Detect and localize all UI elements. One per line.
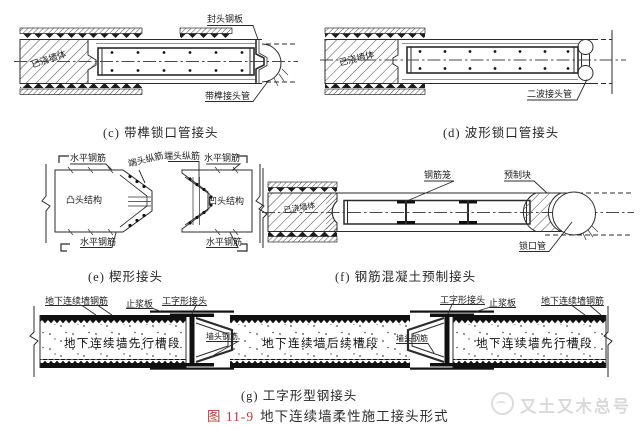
label-convex-head-structure: 凸头结构 (66, 195, 102, 205)
label-horizontal-rebar-bl: 水平钢筋 (80, 237, 116, 247)
label-wall-head-rebar-left: 墙头钢筋 (206, 332, 238, 341)
label-wall-rebar-left: 地下连续墙钢筋 (45, 296, 108, 306)
label-i-shaped-joint-left: 工字形接头 (162, 296, 207, 306)
figure-caption: 图 11-9地下连续墙柔性施工接头形式 (207, 405, 449, 425)
diagram-d-art (320, 28, 626, 100)
figure-title: 地下连续墙柔性施工接头形式 (260, 409, 449, 424)
label-wall-head-rebar-right: 墙头钢筋 (396, 334, 428, 343)
label-precast-block: 预制块 (504, 170, 531, 180)
watermark-text: 又土又木总号 (520, 393, 631, 417)
label-horizontal-rebar-tr: 水平钢筋 (204, 153, 240, 163)
caption-e: (e) 楔形接头 (88, 266, 163, 285)
caption-f: (f) 钢筋混凝土预制接头 (335, 266, 476, 285)
label-wall-rebar-right: 地下连续墙钢筋 (541, 296, 604, 306)
label-tenon-joint-pipe: 带榫接头管 (205, 91, 250, 101)
caption-d: (d) 波形锁口管接头 (443, 122, 559, 141)
label-grout-stop-plate-right: 止浆板 (489, 298, 516, 308)
figure-number: 图 11-9 (207, 409, 254, 424)
diagram-line-art (0, 0, 640, 430)
label-two-wave-joint-pipe: 二波接头管 (527, 89, 572, 99)
label-i-shaped-joint-right: 工字形接头 (440, 295, 485, 305)
label-end-longitudinal-rebar-right: 端头纵筋 (164, 151, 200, 161)
label-rebar-cage: 钢筋笼 (424, 170, 451, 180)
watermark-logo (491, 392, 514, 415)
figure-11-9-page: 封头钢板 已浇墙体 带榫接头管 (c) 带榫锁口管接头 已浇墙体 二波接头管 (… (0, 0, 640, 430)
label-subsequent-panel: 地下连续墙后续槽段 (262, 335, 379, 351)
label-leading-panel-right: 地下连续墙先行槽段 (476, 335, 593, 351)
diagram-c-art (14, 26, 298, 102)
caption-c: (c) 带榫锁口管接头 (103, 122, 219, 141)
label-horizontal-rebar-tl: 水平钢筋 (70, 153, 106, 163)
label-horizontal-rebar-br: 水平钢筋 (206, 237, 242, 247)
label-concave-head-structure: 凹头结构 (208, 196, 244, 206)
caption-g: (g) 工字形型钢接头 (241, 385, 357, 404)
label-lock-pipe: 锁口管 (519, 241, 546, 251)
label-seal-head-plate: 封头钢板 (207, 14, 243, 24)
label-grout-stop-plate-left: 止浆板 (126, 299, 153, 309)
label-leading-panel-left: 地下连续墙先行槽段 (64, 335, 181, 351)
